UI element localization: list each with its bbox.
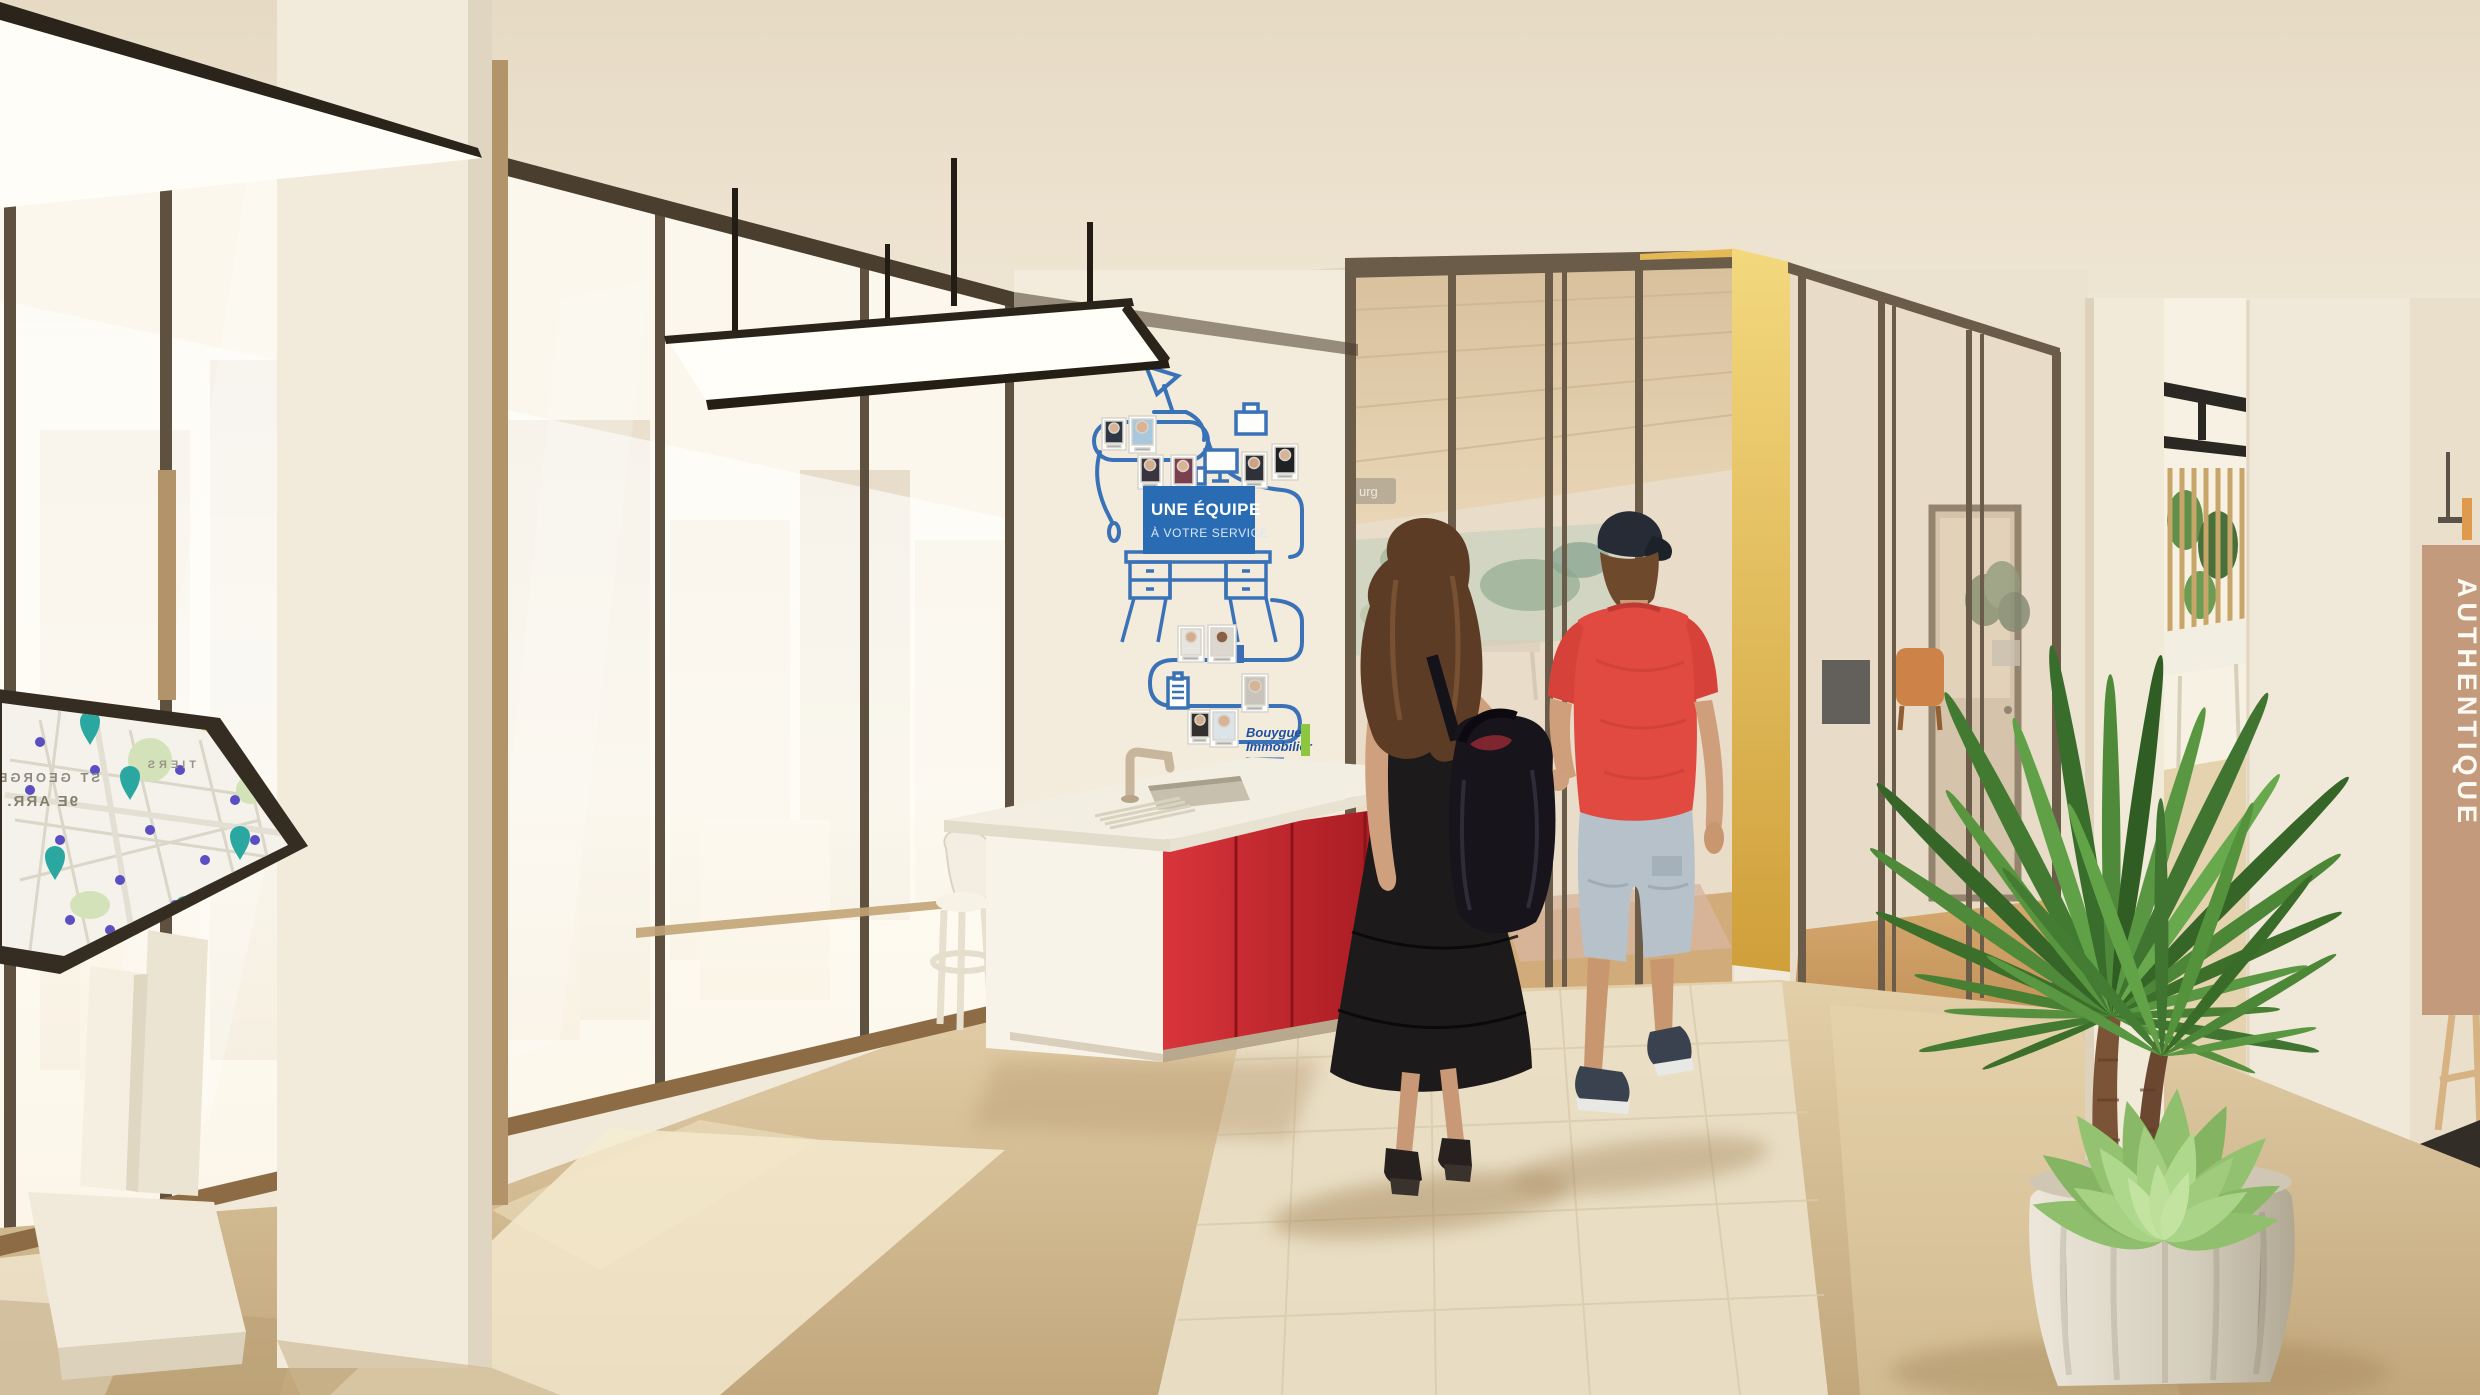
banner-text: AUTHENTIQUE (2452, 578, 2480, 828)
decal-sign-title: UNE ÉQUIPE (1151, 500, 1261, 519)
kiosk-back-panel (138, 930, 208, 1196)
island-shadow (970, 1060, 1320, 1140)
brand-logo-line1: Bouygues (1246, 725, 1309, 740)
photo-card (1188, 710, 1212, 744)
render-canvas: UNE ÉQUIPE À VOTRE SERVICE Bouygues Immo… (0, 0, 2480, 1395)
showroom-render: UNE ÉQUIPE À VOTRE SERVICE Bouygues Immo… (0, 0, 2480, 1395)
man-tshirt (1574, 605, 1697, 822)
decal-sign: UNE ÉQUIPE À VOTRE SERVICE (1143, 486, 1268, 554)
photo-card (1208, 625, 1236, 663)
brand-logo: Bouygues Immobilier (1246, 724, 1313, 759)
banner-accent (2462, 498, 2472, 540)
wood-slats (2170, 468, 2242, 640)
photo-card (1102, 418, 1126, 450)
map-label-arrondissement: 9E ARR. (5, 793, 78, 810)
decal-printer-icon (1236, 412, 1266, 434)
woman-bag (1449, 713, 1556, 933)
photo-card (1138, 455, 1163, 489)
photo-card (1242, 452, 1267, 488)
shorts-pocket (1652, 856, 1682, 876)
decal-phone-icon (1196, 468, 1205, 484)
island-side-panel (986, 822, 1163, 1062)
decal-monitor-icon (1205, 450, 1237, 472)
photo-card (1178, 626, 1204, 662)
photo-card (1171, 455, 1196, 491)
brand-logo-green-bar (1301, 724, 1310, 756)
photo-card (1129, 416, 1156, 453)
map-label-area: TIERS (144, 759, 196, 771)
photo-card (1210, 709, 1238, 747)
man-hand (1704, 822, 1724, 854)
map-label-district: ST GEORGES (0, 770, 100, 785)
photo-card (1242, 674, 1268, 712)
decal-sign-subtitle: À VOTRE SERVICE (1151, 525, 1268, 540)
corner-wood-strip (492, 60, 508, 1205)
photo-card (1272, 444, 1298, 480)
